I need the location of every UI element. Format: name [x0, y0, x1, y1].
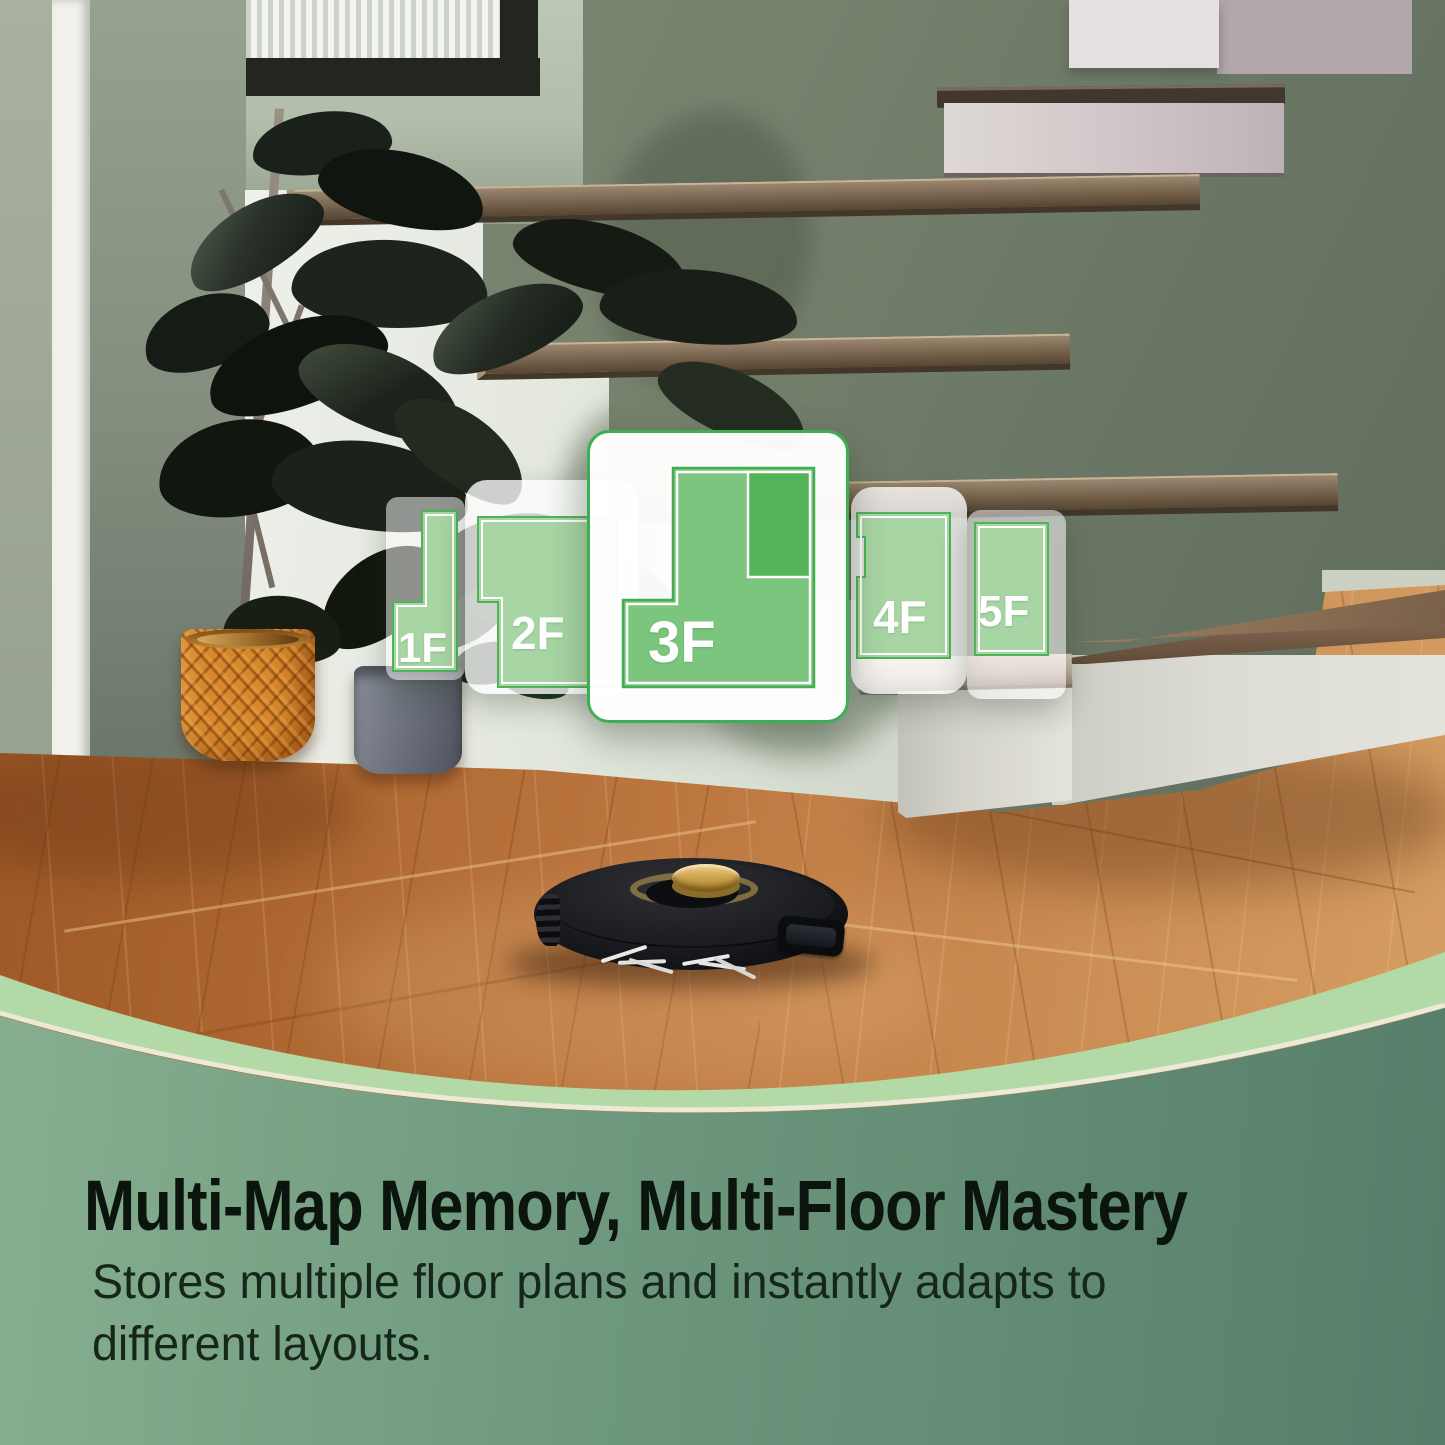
- floorplan-3f-icon: [590, 433, 846, 720]
- wall-left-trim: [52, 0, 90, 775]
- subtitle-line1: Stores multiple floor plans and instantl…: [92, 1252, 1107, 1314]
- gray-pot: [354, 666, 462, 774]
- robot-vacuum: [534, 852, 850, 997]
- orange-pot: [181, 629, 315, 761]
- stair-tread: [477, 334, 1071, 380]
- floor-card-1f: 1F: [386, 497, 465, 680]
- pot-inner-soil: [197, 633, 299, 646]
- window-pane: [240, 0, 500, 66]
- window-frame-right: [500, 0, 538, 96]
- robot-bumper-ribs: [536, 894, 560, 946]
- product-marketing-image: 1F 2F 4F 5F 3F: [0, 0, 1445, 1445]
- wall-left-sage: [0, 0, 52, 775]
- floor-card-4f: 4F: [851, 487, 967, 694]
- sensor-glass: [785, 923, 837, 948]
- subtitle: Stores multiple floor plans and instantl…: [92, 1252, 1107, 1376]
- subtitle-line2: different layouts.: [92, 1314, 1107, 1376]
- window-frame-bottom: [240, 58, 540, 96]
- floor-card-label: 4F: [873, 594, 927, 640]
- floor-card-label: 5F: [978, 590, 1029, 634]
- floor-card-label: 2F: [511, 610, 565, 656]
- front-sensor-window: [776, 915, 845, 958]
- stair-bottom-step-box: [898, 678, 1072, 818]
- stair-upper-riser: [944, 103, 1284, 177]
- floor-card-5f: 5F: [967, 510, 1066, 699]
- lidar-turret-gold: [672, 864, 740, 892]
- stair-upper-beam-shaded: [1217, 0, 1412, 74]
- headline: Multi-Map Memory, Multi-Floor Mastery: [84, 1166, 1187, 1247]
- floor-card-label: 1F: [398, 627, 447, 669]
- floor-card-label: 3F: [648, 614, 716, 672]
- stair-upper-beam: [1069, 0, 1219, 68]
- floor-card-3f-selected: 3F: [587, 430, 849, 723]
